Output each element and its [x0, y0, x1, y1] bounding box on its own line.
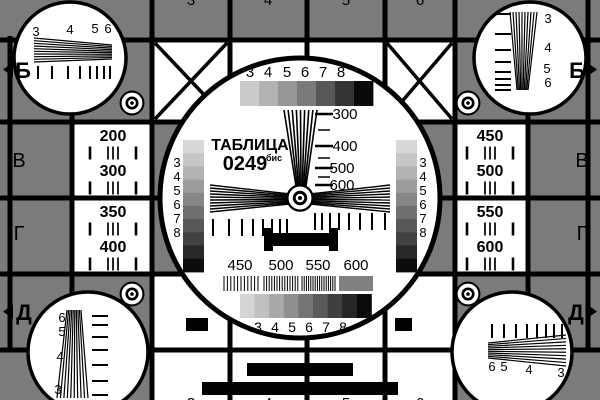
frequency-label: 600: [343, 257, 368, 274]
card-title: ТАБЛИЦА: [211, 137, 289, 154]
cell-number: 200: [100, 128, 127, 145]
grayscale-step: [183, 153, 204, 167]
grayscale-digit: 7: [322, 319, 330, 335]
edge-digit: 6: [416, 0, 424, 9]
edge-letter-b-right: Б: [569, 58, 585, 83]
grayscale-step: [354, 81, 373, 106]
grayscale-step: [183, 193, 204, 207]
edge-letter-d-right: Д: [568, 300, 584, 325]
grayscale-step: [328, 294, 343, 318]
wedge-number: 4: [525, 362, 532, 377]
grayscale-step: [183, 219, 204, 233]
grayscale-digit: 3: [419, 155, 426, 170]
wedge-line: [74, 310, 75, 398]
grayscale-digit: 7: [319, 64, 327, 81]
bullseye-dot: [298, 196, 302, 200]
grayscale-digit: 8: [419, 225, 426, 240]
grayscale-digit: 5: [288, 319, 296, 335]
wedge-number: 3: [557, 365, 564, 380]
grayscale-step: [342, 294, 357, 318]
grayscale-step: [183, 246, 204, 260]
scale-label: 300: [332, 106, 357, 123]
grayscale-step: [396, 180, 417, 194]
card-code: 0249: [223, 153, 268, 175]
wedge-number: 5: [543, 61, 550, 76]
grayscale-step: [240, 81, 259, 106]
cell-number: 350: [100, 204, 127, 221]
grayscale-digit: 5: [419, 183, 426, 198]
grayscale-step: [335, 81, 354, 106]
edge-letter-g-right: Г: [577, 223, 588, 245]
center-bar: [264, 233, 338, 246]
bullseye-dot: [130, 101, 134, 105]
grayscale-step: [396, 166, 417, 180]
grayscale-digit: 3: [173, 155, 180, 170]
grayscale-digit: 4: [271, 319, 279, 335]
black-square-left: [186, 318, 208, 331]
grayscale-step: [269, 294, 284, 318]
grayscale-step: [357, 294, 372, 318]
edge-digit: 4: [264, 395, 272, 400]
grayscale-step: [183, 180, 204, 194]
wedge-number: 5: [500, 359, 507, 374]
grayscale-step: [183, 166, 204, 180]
grayscale-digit: 4: [173, 169, 180, 184]
black-square-right: [395, 318, 412, 331]
grayscale-step: [284, 294, 299, 318]
edge-digit: 3: [187, 395, 195, 400]
bullseye-dot: [466, 101, 470, 105]
grayscale-digit: 4: [264, 64, 272, 81]
wedge-number: 6: [544, 75, 551, 90]
wedge-number: 6: [104, 21, 111, 36]
frequency-label: 450: [227, 257, 252, 274]
grayscale-digit: 8: [337, 64, 345, 81]
grayscale-step: [396, 193, 417, 207]
edge-letter-v-right: В: [575, 150, 588, 172]
grayscale-step: [298, 294, 313, 318]
scale-label: 400: [332, 138, 357, 155]
grayscale-digit: 5: [173, 183, 180, 198]
edge-digit: 5: [342, 0, 350, 9]
wedge-number: 3: [544, 11, 551, 26]
grayscale-step: [396, 153, 417, 167]
wedge-number: 6: [488, 359, 495, 374]
edge-letter-d-left: Д: [16, 300, 32, 325]
card-code-suffix: бис: [266, 153, 282, 163]
wedge-number: 5: [91, 21, 98, 36]
grayscale-digit: 4: [419, 169, 426, 184]
grayscale-step: [259, 81, 278, 106]
grayscale-step: [313, 294, 328, 318]
frequency-label: 500: [268, 257, 293, 274]
grayscale-step: [183, 140, 204, 154]
grayscale-digit: 3: [246, 64, 254, 81]
edge-letter-b-left: Б: [15, 58, 31, 83]
grayscale-digit: 8: [173, 225, 180, 240]
edge-letter-v-left: В: [12, 150, 25, 172]
grayscale-digit: 3: [254, 319, 262, 335]
corner-circle-bottom-left: [28, 292, 148, 400]
sync-bar-short: [247, 363, 353, 376]
grayscale-step: [396, 246, 417, 260]
cell-number: 400: [100, 239, 127, 256]
edge-letter-g-left: Г: [14, 223, 25, 245]
edge-digit: 6: [416, 395, 424, 400]
wedge-number: 6: [58, 310, 65, 325]
cell-number: 300: [100, 163, 127, 180]
bullseye-dot: [130, 292, 134, 296]
scale-label: 500: [329, 160, 354, 177]
grayscale-step: [255, 294, 270, 318]
test-card-canvas: 200300350400450500550600 34563456 ТАБЛИЦ…: [0, 0, 600, 400]
cell-number: 600: [477, 239, 504, 256]
wedge-number: 3: [32, 24, 39, 39]
wedge-number: 4: [544, 40, 551, 55]
cell-number: 450: [477, 128, 504, 145]
edge-digit: 5: [342, 395, 350, 400]
grayscale-step: [396, 232, 417, 246]
grayscale-digit: 5: [283, 64, 291, 81]
grayscale-step: [278, 81, 297, 106]
bullseye-dot: [466, 292, 470, 296]
grayscale-step: [183, 206, 204, 220]
grayscale-step: [396, 219, 417, 233]
cell-number: 500: [477, 163, 504, 180]
grayscale-step: [316, 81, 335, 106]
frequency-label: 550: [305, 257, 330, 274]
grayscale-step: [183, 232, 204, 246]
grayscale-step: [183, 259, 204, 273]
grayscale-digit: 6: [173, 197, 180, 212]
test-card-0249: 200300350400450500550600 34563456 ТАБЛИЦ…: [0, 0, 600, 400]
grayscale-step: [396, 206, 417, 220]
grayscale-digit: 7: [419, 211, 426, 226]
grayscale-step: [396, 259, 417, 273]
grayscale-digit: 7: [173, 211, 180, 226]
edge-digit: 4: [264, 0, 272, 9]
wedge-number: 4: [66, 22, 73, 37]
grayscale-digit: 6: [301, 64, 309, 81]
wedge-line: [34, 56, 112, 57]
grayscale-digit: 6: [305, 319, 313, 335]
grayscale-digit: 8: [339, 319, 347, 335]
grayscale-step: [297, 81, 316, 106]
grayscale-digit: 6: [419, 197, 426, 212]
grayscale-step: [396, 140, 417, 154]
grayscale-step: [240, 294, 255, 318]
cell-number: 550: [477, 204, 504, 221]
edge-digit: 3: [187, 0, 195, 9]
wedge-line: [301, 110, 302, 186]
